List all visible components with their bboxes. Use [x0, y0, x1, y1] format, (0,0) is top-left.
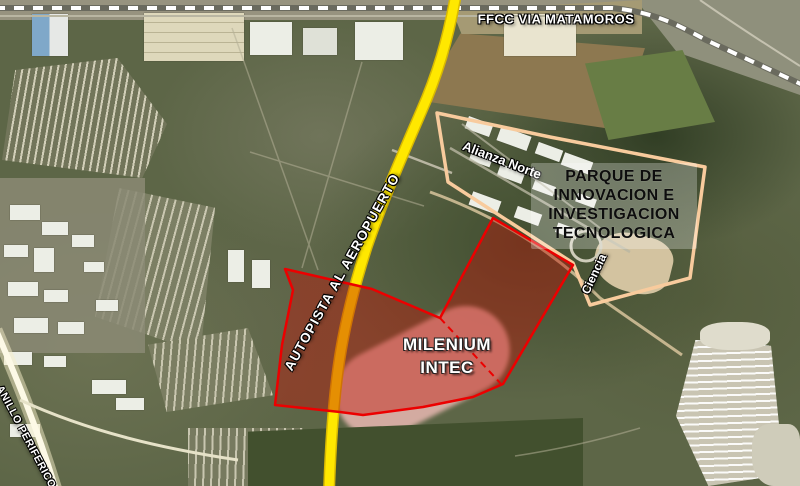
- railway-base: [0, 8, 800, 86]
- park-label-line4: TECNOLOGICA: [533, 224, 695, 243]
- site-label-line2: INTEC: [367, 356, 527, 379]
- site-label: MILENIUM INTEC: [367, 333, 527, 379]
- ring-road-branch: [20, 400, 238, 460]
- site-label-line1: MILENIUM: [367, 333, 527, 356]
- satellite-map: FFCC VIA MATAMOROS AUTOPISTA AL AEROPUER…: [0, 0, 800, 486]
- park-label-line1: PARQUE DE: [533, 167, 695, 186]
- railway-label: FFCC VIA MATAMOROS: [478, 12, 635, 27]
- park-label-line2: INNOVACION E: [533, 186, 695, 205]
- park-label-line3: INVESTIGACION: [533, 205, 695, 224]
- road-topright: [700, 0, 800, 66]
- railway-dashes: [0, 8, 800, 86]
- park-label: PARQUE DE INNOVACION E INVESTIGACION TEC…: [531, 163, 697, 249]
